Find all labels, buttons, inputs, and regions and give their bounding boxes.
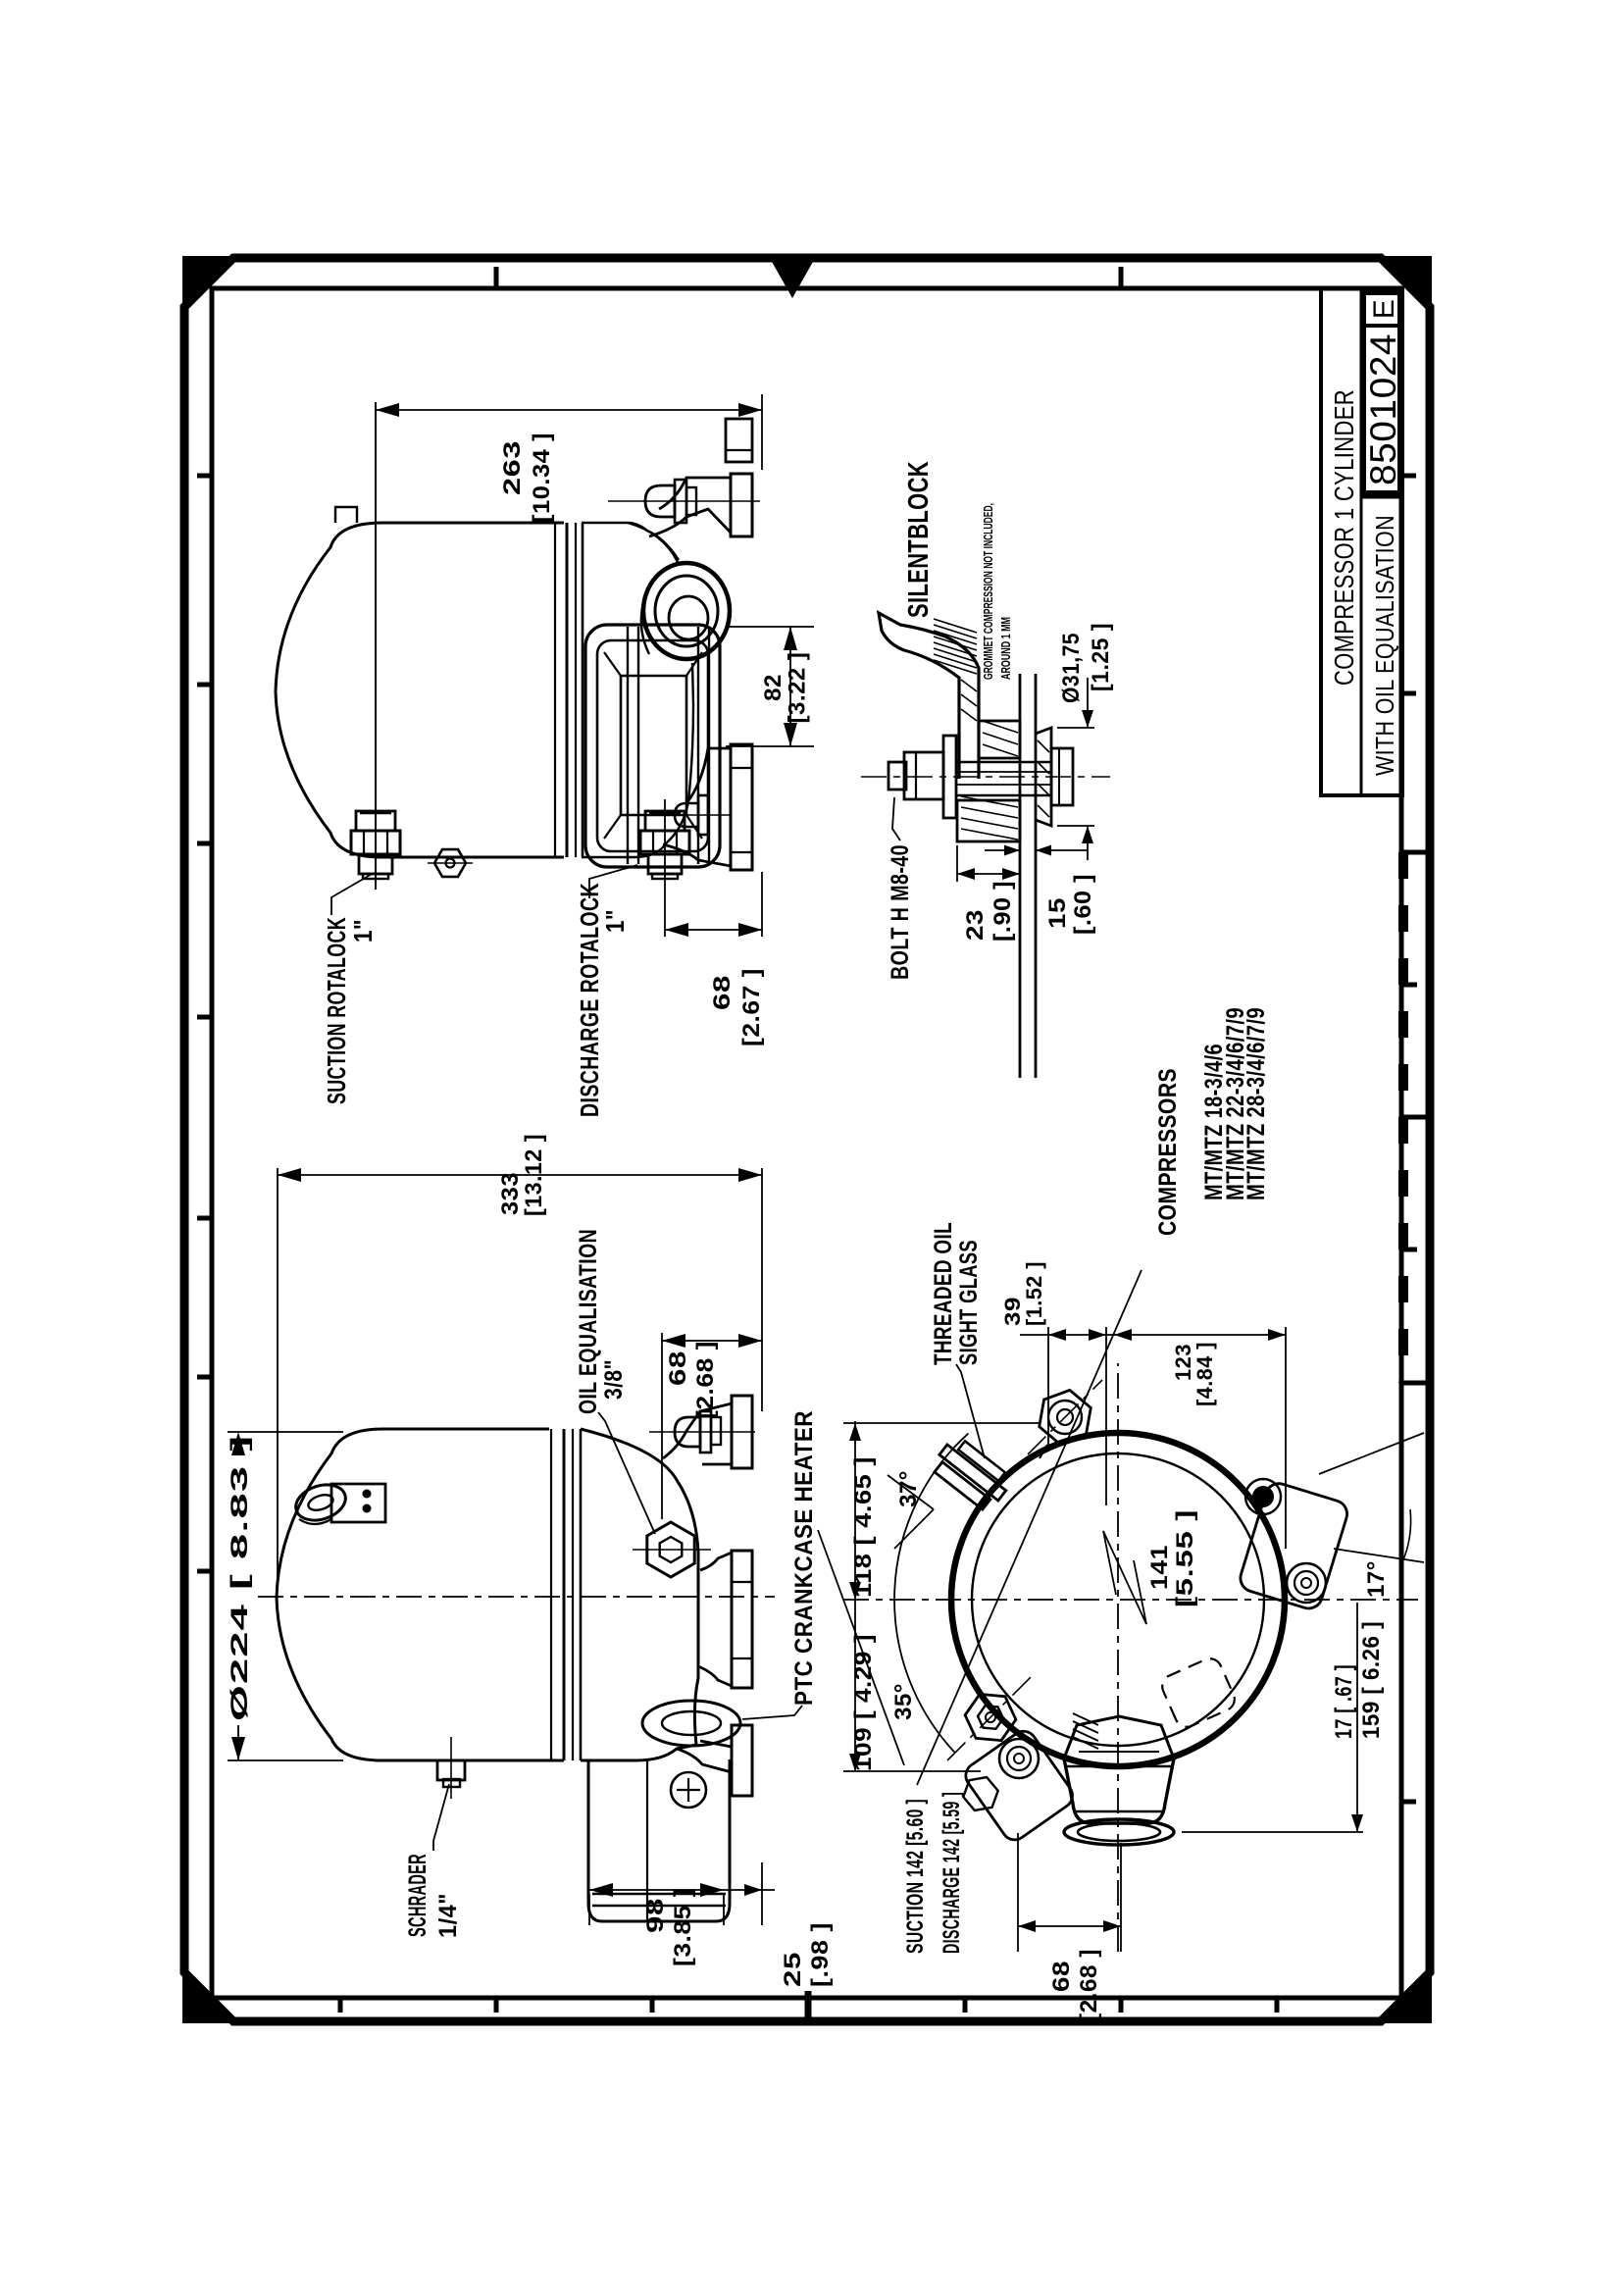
svg-text:Ø224 [ 8.83 ]: Ø224 [ 8.83 ]	[227, 1435, 253, 1721]
svg-text:98: 98	[642, 1898, 669, 1933]
svg-text:109 [ 4.29 ]: 109 [ 4.29 ]	[850, 1634, 877, 1771]
svg-text:PTC CRANKCASE HEATER: PTC CRANKCASE HEATER	[790, 1410, 818, 1706]
svg-text:333: 333	[497, 1172, 524, 1215]
svg-text:37°: 37°	[895, 1470, 922, 1507]
svg-text:17°: 17°	[1363, 1560, 1390, 1598]
svg-text:141: 141	[1146, 1545, 1173, 1590]
svg-text:[.60 ]: [.60 ]	[1070, 874, 1096, 935]
svg-text:E: E	[1368, 299, 1400, 320]
svg-text:Ø31,75: Ø31,75	[1058, 633, 1085, 703]
svg-text:8501024: 8501024	[1363, 333, 1403, 485]
svg-text:[2.68 ]: [2.68 ]	[1076, 1949, 1102, 2021]
svg-text:[2.67 ]: [2.67 ]	[738, 968, 765, 1046]
svg-text:[3.85 ]: [3.85 ]	[670, 1888, 696, 1966]
svg-text:[2.68 ]: [2.68 ]	[692, 1341, 719, 1419]
svg-text:SILENTBLOCK: SILENTBLOCK	[903, 461, 935, 618]
svg-text:3/8": 3/8"	[600, 1359, 628, 1400]
svg-text:[3.22 ]: [3.22 ]	[785, 652, 811, 724]
svg-text:OIL EQUALISATION: OIL EQUALISATION	[575, 1229, 602, 1414]
svg-text:17 [ .67 ]: 17 [ .67 ]	[1331, 1664, 1357, 1739]
svg-text:[1.25 ]: [1.25 ]	[1088, 623, 1114, 691]
svg-text:23: 23	[962, 909, 989, 941]
svg-text:AROUND 1 MM: AROUND 1 MM	[998, 617, 1013, 680]
svg-text:15: 15	[1044, 897, 1071, 929]
svg-text:BOLT H M8-40: BOLT H M8-40	[887, 844, 914, 980]
svg-text:68: 68	[709, 975, 736, 1010]
svg-text:DISCHARGE 142 [5.59 ]: DISCHARGE 142 [5.59 ]	[939, 1792, 965, 1954]
svg-text:THREADED OIL: THREADED OIL	[930, 1222, 957, 1365]
svg-text:[10.34 ]: [10.34 ]	[529, 433, 555, 523]
svg-text:[1.52 ]: [1.52 ]	[1022, 1261, 1046, 1326]
svg-text:118 [ 4.65 ]: 118 [ 4.65 ]	[850, 1456, 877, 1598]
svg-text:[4.84 ]: [4.84 ]	[1193, 1342, 1217, 1406]
svg-text:SIGHT GLASS: SIGHT GLASS	[955, 1240, 983, 1365]
svg-text:GROMMET COMPRESSION NOT INCLUD: GROMMET COMPRESSION NOT INCLUDED,	[981, 503, 995, 680]
svg-text:COMPRESSOR 1 CYLINDER: COMPRESSOR 1 CYLINDER	[1329, 389, 1359, 686]
svg-text:[13.12 ]: [13.12 ]	[521, 1134, 547, 1216]
svg-text:SUCTION ROTALOCK: SUCTION ROTALOCK	[322, 917, 351, 1104]
svg-text:WITH OIL EQUALISATION: WITH OIL EQUALISATION	[1370, 515, 1399, 776]
svg-text:263: 263	[499, 440, 526, 495]
svg-text:25: 25	[780, 1952, 806, 1987]
svg-text:159 [ 6.26 ]: 159 [ 6.26 ]	[1358, 1621, 1385, 1739]
svg-text:[5.55 ]: [5.55 ]	[1172, 1509, 1198, 1607]
svg-text:1/4": 1/4"	[434, 1893, 462, 1938]
svg-text:[.90 ]: [.90 ]	[990, 881, 1016, 942]
svg-text:35°: 35°	[890, 1683, 917, 1720]
svg-text:68: 68	[1048, 1961, 1075, 1992]
svg-text:COMPRESSORS: COMPRESSORS	[1154, 1068, 1182, 1236]
svg-text:1": 1"	[348, 919, 378, 943]
svg-text:[.98 ]: [.98 ]	[807, 1922, 834, 1987]
svg-text:MT/MTZ 28-3/4/6/7/9: MT/MTZ 28-3/4/6/7/9	[1243, 1007, 1270, 1200]
svg-text:SCHRADER: SCHRADER	[404, 1854, 431, 1937]
svg-text:82: 82	[760, 674, 787, 701]
svg-text:68: 68	[665, 1351, 691, 1386]
svg-text:SUCTION 142 [5.60 ]: SUCTION 142 [5.60 ]	[902, 1799, 929, 1954]
svg-text:1": 1"	[600, 909, 630, 933]
